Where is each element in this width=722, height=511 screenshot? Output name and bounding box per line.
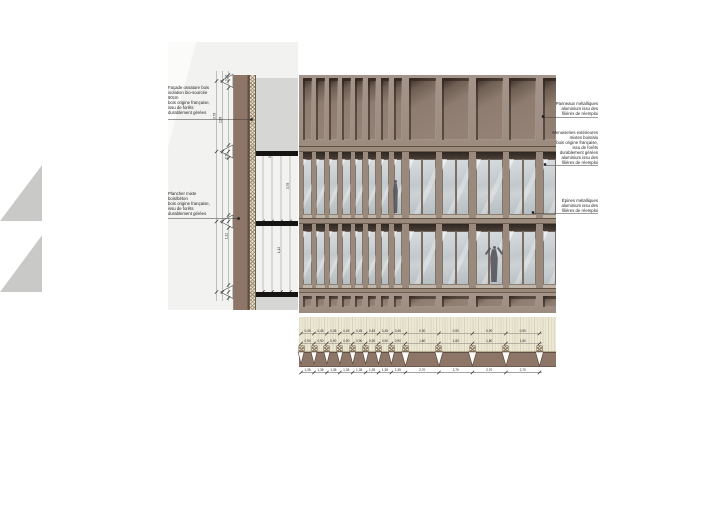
- plan-insulation-square: [299, 346, 304, 351]
- dim-label: 2,70: [520, 368, 526, 372]
- person-silhouette: [392, 180, 400, 213]
- right-annotation-panels: Panneaux métalliquesaluminium issu desfi…: [518, 101, 598, 116]
- dim-tick: [390, 371, 393, 374]
- annotation-line: filières de réemploi: [518, 111, 598, 116]
- annotation-line: filières de réemploi: [518, 160, 598, 165]
- niche-recess: [442, 78, 469, 140]
- shadow-wedge: [0, 226, 42, 292]
- window-soffit: [316, 224, 325, 231]
- window-soffit: [476, 152, 503, 159]
- center-mullion: [522, 159, 524, 214]
- window-pane: [329, 159, 338, 214]
- window-bay: [303, 224, 312, 288]
- window-bay: [409, 152, 436, 218]
- window-soffit: [342, 224, 351, 231]
- niche-recess: [303, 296, 312, 307]
- dim-tick: [437, 371, 440, 374]
- window-soffit: [381, 152, 390, 159]
- window-pane: [394, 231, 403, 284]
- window-soffit: [509, 224, 536, 231]
- window-soffit: [316, 152, 325, 159]
- dim-label: 1,35: [356, 368, 362, 372]
- niche-recess: [342, 296, 351, 307]
- window-soffit: [394, 224, 403, 231]
- floor-slab: [256, 151, 298, 156]
- window-soffit: [476, 224, 503, 231]
- window-pane: [303, 159, 312, 214]
- dim-label: 1,35: [317, 368, 323, 372]
- dim-tick: [504, 371, 507, 374]
- floor-slab: [256, 292, 298, 297]
- dim-label: 1,35: [343, 368, 349, 372]
- concrete-story: [0, 156, 42, 221]
- window-pane: [355, 159, 364, 214]
- dim-label: 1,35: [304, 368, 310, 372]
- window-soffit: [329, 224, 338, 231]
- niche-recess: [355, 296, 364, 307]
- niche-recess: [442, 296, 469, 307]
- window-soffit: [355, 152, 364, 159]
- plan-insulation-square: [363, 346, 368, 351]
- window-soffit: [442, 152, 469, 159]
- dim-tick: [404, 371, 407, 374]
- annotation-line: durablement gérées: [168, 110, 232, 115]
- concrete-story: [0, 226, 42, 292]
- window-bay: [409, 224, 436, 288]
- window-bay: [368, 224, 377, 288]
- window-soffit: [381, 224, 390, 231]
- plan-brown-band: [299, 352, 556, 367]
- right-annotation-windows: Menuiseries extérieuresmixtes bois/alubo…: [518, 130, 598, 165]
- window-bay: [368, 152, 377, 218]
- person-body: [489, 249, 498, 282]
- dim-label: 1,35: [382, 368, 388, 372]
- dim-label: 2,70: [419, 368, 425, 372]
- center-mullion: [488, 159, 490, 214]
- plan-insulation-square: [312, 346, 317, 351]
- window-bay: [509, 224, 536, 288]
- dim-tick: [471, 371, 474, 374]
- center-mullion: [555, 159, 556, 214]
- dim-label: 1,35: [395, 368, 401, 372]
- window-soffit: [368, 152, 377, 159]
- window-bay: [381, 152, 390, 218]
- niche-recess: [476, 296, 503, 307]
- niche-recess: [303, 78, 312, 140]
- plan-insulation-square: [503, 346, 508, 351]
- niche-recess: [316, 78, 325, 140]
- dim-tick: [351, 371, 354, 374]
- niche-recess: [409, 78, 436, 140]
- plan-insulation-square: [350, 346, 355, 351]
- window-soffit: [368, 224, 377, 231]
- window-pane: [316, 231, 325, 284]
- window-pane: [342, 231, 351, 284]
- niche-recess: [355, 78, 364, 140]
- plan-cream-band: [299, 317, 556, 352]
- window-bay: [442, 224, 469, 288]
- center-mullion: [455, 159, 457, 214]
- plan-insulation-square: [324, 346, 329, 351]
- person-head: [394, 180, 397, 183]
- window-bay: [476, 152, 503, 218]
- niche-recess: [329, 296, 338, 307]
- dim-label: 1,35: [369, 368, 375, 372]
- niche-recess: [394, 78, 403, 140]
- niche-recess: [368, 78, 377, 140]
- window-pane: [381, 231, 390, 284]
- dim-label: 1,35: [330, 368, 336, 372]
- window-bay: [394, 224, 403, 288]
- concrete-story: [256, 297, 298, 310]
- window-soffit: [303, 152, 312, 159]
- niche-recess: [394, 296, 403, 307]
- window-soffit: [409, 152, 436, 159]
- floor-slab: [256, 221, 298, 226]
- timber-wall-strip: [233, 75, 249, 310]
- plan-insulation-square: [436, 346, 441, 351]
- window-soffit: [355, 224, 364, 231]
- dim-label: 2,70: [453, 368, 459, 372]
- facade-row-windows: [299, 224, 556, 288]
- window-bay: [442, 152, 469, 218]
- plan-insulation-square: [403, 346, 408, 351]
- center-mullion: [455, 231, 457, 284]
- window-soffit: [543, 224, 556, 231]
- plan-insulation-square: [470, 346, 475, 351]
- window-bay: [342, 224, 351, 288]
- drawing-canvas: Façade ossature boisisolation bio-sourcé…: [0, 0, 722, 511]
- center-mullion: [421, 159, 423, 214]
- window-soffit: [394, 152, 403, 159]
- window-pane: [329, 231, 338, 284]
- window-bay: [355, 224, 364, 288]
- center-mullion: [421, 231, 423, 284]
- window-pane: [303, 231, 312, 284]
- dim-tick: [312, 371, 315, 374]
- plan-insulation-square: [389, 346, 394, 351]
- dim-tick: [364, 371, 367, 374]
- right-annotation-fins: Épines métalliquesaluminium issu desfili…: [518, 198, 598, 213]
- section-annotation-facade: Façade ossature boisisolation bio-sourcé…: [168, 85, 232, 115]
- dim-label: 2,70: [486, 368, 492, 372]
- plan-insulation-square: [337, 346, 342, 351]
- dim-tick: [338, 371, 341, 374]
- window-soffit: [329, 152, 338, 159]
- niche-recess: [509, 296, 536, 307]
- window-bay: [316, 152, 325, 218]
- niche-recess: [381, 78, 390, 140]
- window-bay: [342, 152, 351, 218]
- insulation-layer: [249, 75, 256, 310]
- dim-tick: [538, 371, 541, 374]
- person-body: [393, 183, 399, 213]
- dim-tick: [299, 371, 302, 374]
- facade-row-niches: [299, 293, 556, 313]
- niche-recess: [368, 296, 377, 307]
- annotation-line: filières de réemploi: [518, 208, 598, 213]
- center-mullion: [555, 231, 556, 284]
- person-silhouette: [488, 246, 501, 282]
- window-bay: [381, 224, 390, 288]
- section-annotation-floor: Plancher mixtebois/bétonbois origine fra…: [168, 191, 232, 216]
- niche-recess: [342, 78, 351, 140]
- center-mullion: [522, 231, 524, 284]
- window-soffit: [442, 224, 469, 231]
- window-pane: [355, 231, 364, 284]
- plan-insulation-square: [376, 346, 381, 351]
- annotation-line: durablement gérées: [168, 211, 232, 216]
- shadow-wedge: [0, 156, 42, 221]
- window-soffit: [409, 224, 436, 231]
- window-pane: [381, 159, 390, 214]
- person-head: [493, 246, 496, 249]
- niche-recess: [543, 296, 556, 307]
- niche-recess: [329, 78, 338, 140]
- window-soffit: [303, 224, 312, 231]
- window-pane: [316, 159, 325, 214]
- window-soffit: [342, 152, 351, 159]
- window-pane: [342, 159, 351, 214]
- niche-recess: [409, 296, 436, 307]
- dim-tick: [377, 371, 380, 374]
- window-pane: [368, 159, 377, 214]
- window-bay: [543, 224, 556, 288]
- window-pane: [543, 231, 556, 284]
- dim-tick: [325, 371, 328, 374]
- niche-recess: [381, 296, 390, 307]
- window-bay: [329, 224, 338, 288]
- window-bay: [355, 152, 364, 218]
- window-bay: [303, 152, 312, 218]
- window-pane: [368, 231, 377, 284]
- window-bay: [329, 152, 338, 218]
- window-bay: [316, 224, 325, 288]
- concrete-story: [256, 78, 298, 151]
- plan-insulation-square: [537, 346, 542, 351]
- niche-recess: [316, 296, 325, 307]
- niche-recess: [476, 78, 503, 140]
